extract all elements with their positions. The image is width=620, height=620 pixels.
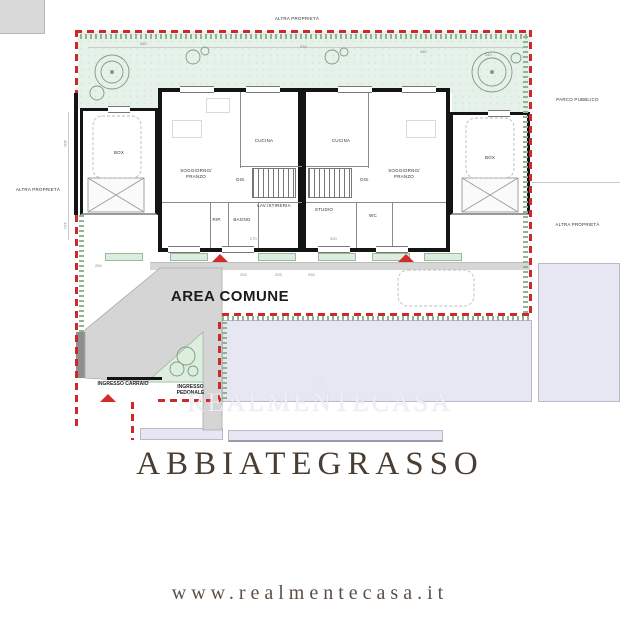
furniture-outline bbox=[406, 120, 436, 138]
dimension-label: 120 bbox=[63, 222, 68, 229]
label-soggiorno-right-line2: PRANZO bbox=[394, 174, 414, 179]
label-cucina-right: CUCINA bbox=[323, 138, 359, 144]
entrance-marker-icon bbox=[212, 254, 228, 262]
planter bbox=[424, 253, 462, 261]
label-parco-pubblico: PARCO PUBBLICO bbox=[535, 97, 620, 103]
partition-wall bbox=[392, 202, 393, 248]
dimension-label: 200 bbox=[240, 272, 247, 277]
dimension-label: 250 bbox=[308, 272, 315, 277]
label-rip-left: RIP. bbox=[208, 217, 226, 223]
tree-icon bbox=[340, 48, 348, 56]
window bbox=[488, 110, 510, 117]
boundary-dash-small bbox=[131, 402, 134, 440]
label-bagno-left: BAGNO bbox=[228, 217, 256, 223]
dimension-label: 225 bbox=[275, 272, 282, 277]
car-outline bbox=[93, 116, 141, 178]
planter bbox=[318, 253, 356, 261]
window bbox=[168, 246, 200, 253]
boundary-dash-bottom bbox=[222, 313, 532, 316]
label-soggiorno-right-line1: SOGGIORNO/ bbox=[388, 168, 420, 173]
partition-wall bbox=[240, 92, 241, 168]
label-studio: STUDIO bbox=[306, 207, 342, 213]
label-box-right: BOX bbox=[472, 155, 508, 161]
partition-wall bbox=[306, 202, 446, 203]
furniture-outline bbox=[206, 98, 230, 113]
window bbox=[402, 86, 436, 93]
hedge-right bbox=[523, 36, 528, 314]
boundary-dash-top bbox=[75, 30, 532, 33]
entrance-marker-icon bbox=[100, 394, 116, 402]
label-wc: WC bbox=[363, 213, 383, 219]
planter bbox=[170, 253, 208, 261]
window bbox=[246, 86, 280, 93]
boundary-dash-left-lower bbox=[75, 215, 78, 430]
staircase-left bbox=[252, 168, 296, 198]
partition-wall bbox=[368, 92, 369, 168]
dimension-label: 240 bbox=[485, 52, 492, 57]
label-dis-left: DIS. bbox=[232, 177, 250, 183]
label-altra-proprieta-left: ALTRA PROPRIETÀ bbox=[3, 187, 73, 193]
partition-wall bbox=[356, 202, 357, 248]
dimension-label: 935 bbox=[300, 44, 307, 49]
hedge-left bbox=[79, 215, 84, 333]
partition-wall bbox=[240, 166, 302, 167]
tree-icon bbox=[511, 53, 521, 63]
label-cucina-left: CUCINA bbox=[246, 138, 282, 144]
label-lav-stireria: LAV./STIRERIA bbox=[252, 203, 296, 209]
label-dis-right: DIS. bbox=[356, 177, 374, 183]
label-ingresso-carraio: INGRESSO CARRAIO bbox=[78, 381, 168, 387]
watermark-text: REALMENTECASA bbox=[180, 388, 460, 418]
site-wall-left bbox=[74, 93, 78, 215]
car-outline bbox=[398, 270, 474, 306]
label-altra-proprieta-right: ALTRA PROPRIETÀ bbox=[535, 222, 620, 228]
partition-wall bbox=[306, 166, 369, 167]
site-plan-page: ALTRA PROPRIETÀ ALTRA PROPRIETÀ PARCO PU… bbox=[0, 0, 620, 620]
partition-wall bbox=[210, 202, 211, 248]
hedge-top bbox=[80, 34, 528, 39]
label-soggiorno-left-line1: SOGGIORNO/ bbox=[180, 168, 212, 173]
boundary-dash-right bbox=[529, 30, 532, 318]
tree-icon bbox=[325, 50, 339, 64]
partition-wall bbox=[258, 202, 259, 248]
brand-city-title: ABBIATEGRASSO bbox=[0, 446, 620, 483]
window bbox=[222, 246, 254, 253]
label-box-left: BOX bbox=[101, 150, 137, 156]
planter bbox=[258, 253, 296, 261]
dimension-label: 480 bbox=[420, 49, 427, 54]
window bbox=[108, 106, 130, 113]
car-outline bbox=[466, 118, 514, 178]
partition-wall bbox=[228, 202, 229, 248]
dimension-label: 270 bbox=[250, 236, 257, 241]
window bbox=[338, 86, 372, 93]
planter bbox=[105, 253, 143, 261]
dimension-label: 580 bbox=[140, 41, 147, 46]
dimension-label: 300 bbox=[330, 236, 337, 241]
driveway-gate bbox=[107, 377, 162, 380]
tree-icon bbox=[90, 86, 104, 100]
tree-icon bbox=[186, 50, 200, 64]
dimension-label: 400 bbox=[63, 140, 68, 147]
entrance-marker-icon bbox=[398, 254, 414, 262]
staircase-right bbox=[308, 168, 352, 198]
garage-platforms bbox=[88, 178, 518, 212]
label-soggiorno-left: SOGGIORNO/ PRANZO bbox=[170, 168, 222, 180]
boundary-dash-left-upper bbox=[75, 30, 78, 93]
window bbox=[180, 86, 214, 93]
label-soggiorno-right: SOGGIORNO/ PRANZO bbox=[378, 168, 430, 180]
label-soggiorno-left-line2: PRANZO bbox=[186, 174, 206, 179]
brand-website-url: www.realmentecasa.it bbox=[0, 582, 620, 605]
hedge-bottom bbox=[222, 316, 532, 321]
dimension-label: 250 bbox=[95, 263, 102, 268]
tree-icon bbox=[201, 47, 209, 55]
window bbox=[376, 246, 408, 253]
label-area-comune: AREA COMUNE bbox=[150, 288, 310, 305]
window bbox=[318, 246, 350, 253]
furniture-outline bbox=[172, 120, 202, 138]
label-altra-proprieta-top: ALTRA PROPRIETÀ bbox=[247, 16, 347, 22]
